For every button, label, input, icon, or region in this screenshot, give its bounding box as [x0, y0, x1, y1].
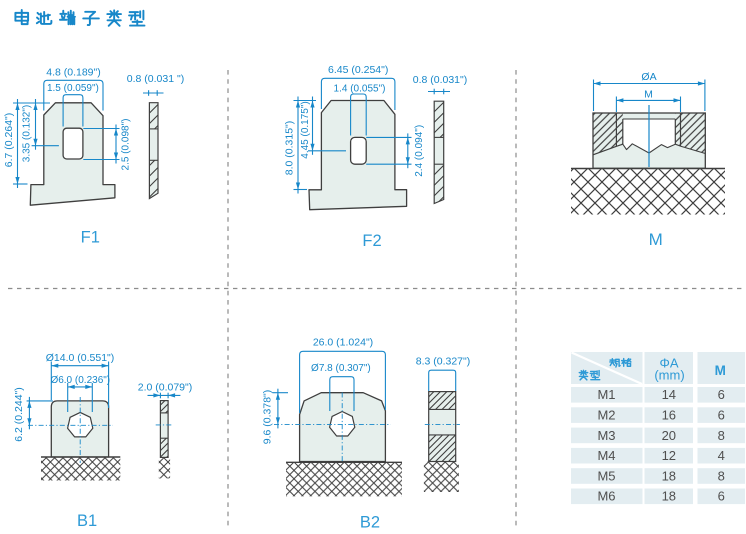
- svg-text:F1: F1: [81, 228, 100, 246]
- svg-text:18: 18: [662, 489, 676, 504]
- svg-text:4.45 (0.175"): 4.45 (0.175"): [300, 101, 311, 158]
- svg-text:M1: M1: [597, 387, 615, 402]
- svg-text:M: M: [649, 230, 663, 249]
- svg-text:26.0 (1.024"): 26.0 (1.024"): [313, 337, 373, 349]
- svg-text:2.4 (0.094"): 2.4 (0.094"): [414, 125, 425, 177]
- svg-text:M3: M3: [597, 428, 615, 443]
- svg-text:M2: M2: [597, 408, 615, 423]
- svg-text:6: 6: [718, 408, 725, 423]
- svg-text:M: M: [644, 88, 653, 100]
- svg-text:20: 20: [662, 428, 676, 443]
- svg-text:6: 6: [718, 489, 725, 504]
- svg-text:(mm): (mm): [654, 368, 684, 383]
- svg-text:Ø7.8 (0.307"): Ø7.8 (0.307"): [311, 363, 371, 374]
- svg-text:12: 12: [662, 448, 676, 463]
- svg-text:4: 4: [718, 448, 725, 463]
- svg-text:M6: M6: [597, 489, 615, 504]
- svg-text:9.6 (0.378"): 9.6 (0.378"): [262, 390, 274, 445]
- svg-text:M5: M5: [597, 468, 615, 483]
- svg-text:8: 8: [718, 468, 725, 483]
- svg-text:8.3 (0.327"): 8.3 (0.327"): [416, 356, 471, 368]
- svg-text:3.35 (0.132"): 3.35 (0.132"): [21, 105, 32, 162]
- svg-text:8.0 (0.315"): 8.0 (0.315"): [284, 121, 296, 176]
- svg-text:1.4 (0.055"): 1.4 (0.055"): [334, 83, 386, 94]
- svg-text:0.8 (0.031"): 0.8 (0.031"): [413, 74, 468, 86]
- svg-text:4.8 (0.189"): 4.8 (0.189"): [46, 66, 101, 78]
- svg-text:14: 14: [662, 387, 676, 402]
- svg-text:M4: M4: [597, 448, 615, 463]
- svg-text:6: 6: [718, 387, 725, 402]
- svg-text:6.2 (0.244"): 6.2 (0.244"): [13, 387, 25, 442]
- svg-text:M: M: [715, 363, 726, 378]
- svg-text:18: 18: [662, 468, 676, 483]
- svg-text:1.5 (0.059"): 1.5 (0.059"): [47, 83, 99, 94]
- svg-text:6.7 (0.264"): 6.7 (0.264"): [3, 113, 15, 168]
- svg-text:B1: B1: [77, 512, 97, 530]
- svg-text:ØA: ØA: [641, 71, 656, 83]
- svg-text:0.8 (0.031 "): 0.8 (0.031 "): [127, 73, 184, 85]
- svg-text:Ø6.0 (0.236"): Ø6.0 (0.236"): [50, 375, 110, 386]
- svg-text:8: 8: [718, 428, 725, 443]
- svg-text:2.0 (0.079"): 2.0 (0.079"): [138, 382, 193, 394]
- svg-text:B2: B2: [360, 514, 380, 532]
- svg-text:Ø14.0 (0.551"): Ø14.0 (0.551"): [46, 352, 115, 364]
- svg-text:16: 16: [662, 408, 676, 423]
- svg-text:2.5 (0.098"): 2.5 (0.098"): [121, 119, 132, 171]
- svg-text:F2: F2: [362, 232, 381, 250]
- svg-text:6.45 (0.254"): 6.45 (0.254"): [328, 64, 388, 76]
